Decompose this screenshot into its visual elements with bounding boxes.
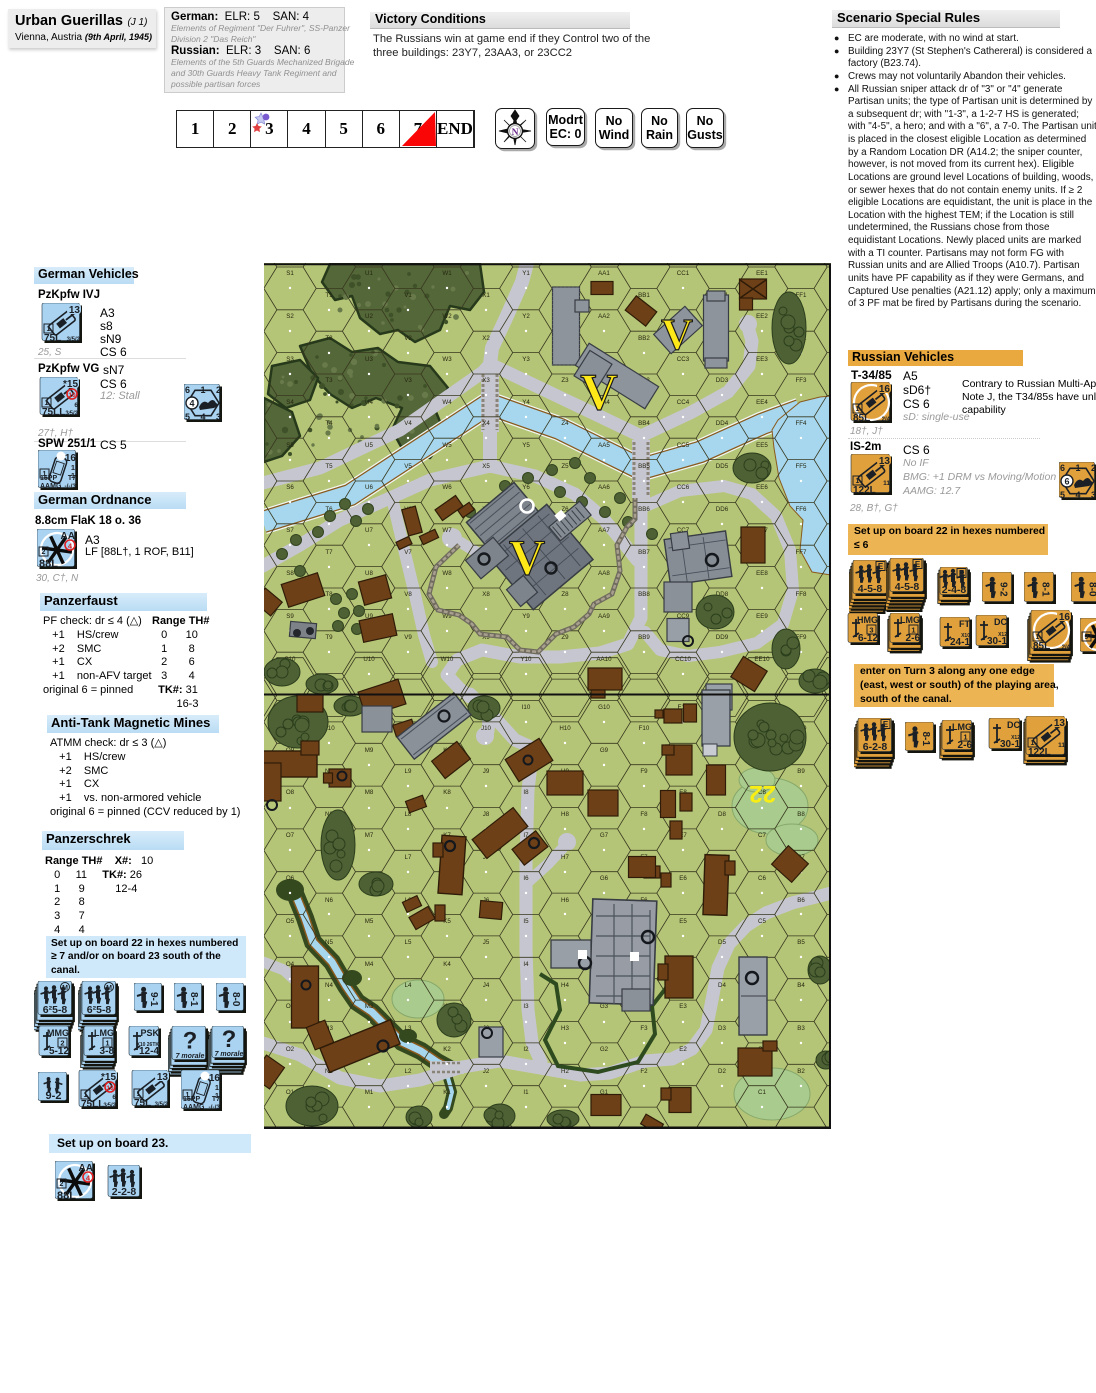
svg-text:DC: DC [994, 617, 1007, 627]
svg-text:-/-/3: -/-/3 [208, 1104, 220, 1111]
svg-text:EE3: EE3 [756, 356, 768, 363]
svg-text:4: 4 [189, 399, 194, 409]
svg-text:6²5-8: 6²5-8 [87, 1004, 112, 1016]
svg-text:3-8: 3-8 [100, 1046, 115, 1057]
svg-text:13: 13 [69, 305, 81, 316]
svg-text:DD9: DD9 [716, 634, 729, 641]
svg-text:8-0: 8-0 [1086, 582, 1096, 597]
svg-text:Y4: Y4 [522, 399, 530, 406]
svg-text:LMG: LMG [900, 615, 920, 625]
svg-text:N4: N4 [325, 982, 333, 989]
svg-text:75L: 75L [134, 1098, 151, 1109]
svg-text:U8: U8 [365, 570, 373, 577]
svg-text:EE5: EE5 [756, 442, 768, 449]
svg-text:I5: I5 [523, 918, 529, 925]
svg-text:1: 1 [45, 400, 49, 407]
svg-text:13: 13 [1054, 718, 1066, 729]
svg-text:PSK: PSK [140, 1028, 159, 1038]
svg-text:BB4: BB4 [638, 420, 650, 427]
svg-text:DC: DC [1007, 720, 1020, 730]
svg-text:O2: O2 [286, 1046, 295, 1053]
svg-text:M8: M8 [365, 789, 374, 796]
svg-text:6²5-8: 6²5-8 [43, 1004, 68, 1016]
svg-text:M: M [106, 985, 112, 992]
svg-text:4-5-8: 4-5-8 [895, 581, 920, 593]
svg-text:Z8: Z8 [561, 591, 569, 598]
svg-text:15PP: 15PP [40, 475, 57, 482]
svg-text:J9: J9 [483, 768, 490, 775]
svg-text:T7: T7 [325, 549, 333, 556]
svg-text:T7: T7 [212, 1096, 220, 1103]
svg-text:2: 2 [216, 385, 221, 395]
svg-text:V1: V1 [404, 292, 412, 299]
svg-text:BB2: BB2 [638, 335, 650, 342]
svg-text:BB6: BB6 [638, 506, 650, 513]
svg-text:O5: O5 [286, 918, 295, 925]
svg-text:F10: F10 [639, 725, 650, 732]
svg-text:AAMG: AAMG [40, 483, 62, 490]
svg-text:W8: W8 [442, 570, 452, 577]
svg-text:B8: B8 [797, 811, 805, 818]
svg-text:2/4: 2/4 [1062, 645, 1071, 651]
svg-text:B6: B6 [797, 897, 805, 904]
svg-text:EE1: EE1 [756, 270, 768, 277]
svg-text:10: 10 [106, 1085, 114, 1092]
svg-text:CC6: CC6 [677, 484, 690, 491]
svg-text:4: 4 [200, 412, 205, 422]
svg-text:1: 1 [47, 326, 51, 333]
svg-text:AA7: AA7 [598, 527, 610, 534]
svg-text:B9: B9 [797, 768, 805, 775]
svg-text:3/5/2: 3/5/2 [67, 337, 81, 343]
svg-text:DD3: DD3 [716, 377, 729, 384]
svg-text:S8: S8 [286, 570, 294, 577]
svg-text:V2: V2 [404, 335, 412, 342]
svg-text:V: V [661, 310, 693, 359]
svg-text:J10: J10 [481, 725, 492, 732]
svg-text:CC10: CC10 [675, 656, 691, 663]
svg-text:LMG: LMG [952, 722, 972, 732]
svg-text:1: 1 [1031, 740, 1035, 747]
svg-text:X5: X5 [482, 463, 490, 470]
svg-text:T9: T9 [325, 634, 333, 641]
svg-text:6: 6 [1060, 463, 1065, 473]
svg-text:9-2: 9-2 [46, 1090, 62, 1102]
svg-text:H3: H3 [561, 1025, 569, 1032]
svg-text:3∕5/2: 3∕5/2 [103, 1102, 116, 1109]
svg-text:I1: I1 [523, 1089, 529, 1096]
svg-text:CC1: CC1 [677, 270, 690, 277]
svg-text:EE6: EE6 [756, 484, 768, 491]
svg-text:16: 16 [879, 384, 891, 395]
svg-text:B3: B3 [797, 1025, 805, 1032]
svg-text:H7: H7 [561, 854, 569, 861]
svg-text:F3: F3 [640, 1025, 648, 1032]
svg-text:V: V [580, 364, 618, 421]
svg-text:13: 13 [879, 456, 891, 467]
svg-text:J2: J2 [483, 1068, 490, 1075]
svg-text:K8: K8 [443, 789, 451, 796]
svg-text:D8: D8 [718, 811, 726, 818]
svg-text:30-1: 30-1 [987, 636, 1007, 647]
svg-text:I4: I4 [523, 961, 529, 968]
svg-text:E6: E6 [679, 875, 687, 882]
svg-text:22: 22 [749, 780, 776, 807]
svg-text:1: 1 [200, 385, 205, 395]
svg-text:S5: S5 [286, 442, 294, 449]
svg-text:B5: B5 [797, 939, 805, 946]
svg-text:85L: 85L [853, 413, 870, 424]
svg-text:U7: U7 [365, 527, 373, 534]
svg-text:S2: S2 [286, 313, 294, 320]
svg-text:I6: I6 [523, 875, 529, 882]
svg-text:9: 9 [1085, 634, 1089, 641]
svg-text:X2: X2 [482, 335, 490, 342]
svg-text:M3: M3 [365, 1003, 374, 1010]
svg-text:AA10: AA10 [596, 656, 612, 663]
svg-text:S1: S1 [286, 270, 294, 277]
svg-text:LMG: LMG [94, 1028, 114, 1038]
svg-text:E: E [915, 560, 921, 569]
svg-text:6-2-8: 6-2-8 [863, 741, 888, 753]
svg-text:H10: H10 [559, 725, 571, 732]
svg-text:I3: I3 [523, 1003, 529, 1010]
svg-text:1: 1 [856, 478, 860, 485]
svg-text:E: E [883, 720, 889, 729]
svg-text:V3: V3 [404, 377, 412, 384]
svg-text:FF4: FF4 [795, 420, 807, 427]
svg-text:AAMG: AAMG [183, 1104, 205, 1111]
svg-text:D5: D5 [718, 939, 726, 946]
svg-text:X4: X4 [482, 420, 490, 427]
svg-text:8-1: 8-1 [920, 732, 931, 747]
svg-text:F2: F2 [640, 1068, 648, 1075]
svg-text:6: 6 [74, 402, 78, 409]
svg-text:CC4: CC4 [677, 399, 690, 406]
svg-text:FF8: FF8 [795, 591, 807, 598]
svg-text:5-12: 5-12 [49, 1046, 69, 1057]
svg-text:MMG: MMG [47, 1028, 69, 1038]
svg-text:L3: L3 [405, 1025, 412, 1032]
svg-text:5: 5 [185, 412, 190, 422]
svg-text:K1: K1 [443, 1089, 451, 1096]
svg-text:1: 1 [856, 406, 860, 413]
svg-text:V: V [509, 529, 545, 585]
svg-text:1: 1 [1075, 463, 1080, 473]
svg-text:Y9: Y9 [522, 613, 530, 620]
svg-text:D4: D4 [718, 982, 726, 989]
svg-text:J4: J4 [483, 982, 490, 989]
svg-text:I8: I8 [523, 789, 529, 796]
svg-text:B4: B4 [797, 982, 805, 989]
svg-text:N: N [512, 128, 519, 138]
svg-text:I2: I2 [523, 1046, 529, 1053]
svg-text:K4: K4 [443, 961, 451, 968]
svg-text:W10: W10 [441, 656, 454, 663]
svg-text:Z9: Z9 [561, 634, 569, 641]
svg-text:V7: V7 [404, 549, 412, 556]
svg-text:15PP: 15PP [183, 1096, 200, 1103]
svg-text:M9: M9 [365, 747, 374, 754]
svg-text:W5: W5 [442, 442, 452, 449]
svg-text:7 morale: 7 morale [215, 1051, 244, 1058]
svg-text:V8: V8 [404, 591, 412, 598]
svg-text:G9: G9 [600, 747, 609, 754]
svg-text:L7: L7 [405, 854, 412, 861]
svg-text:75LL: 75LL [81, 1099, 104, 1110]
svg-text:11: 11 [883, 480, 890, 487]
svg-text:U10: U10 [363, 656, 375, 663]
svg-text:C6: C6 [758, 875, 766, 882]
svg-text:O6: O6 [286, 875, 295, 882]
svg-text:W6: W6 [442, 484, 452, 491]
svg-text:M1: M1 [365, 1089, 374, 1096]
svg-text:M: M [62, 985, 68, 992]
svg-text:EE9: EE9 [756, 613, 768, 620]
svg-text:11: 11 [1058, 742, 1065, 749]
svg-text:W3: W3 [442, 356, 452, 363]
svg-text:I10: I10 [522, 704, 531, 711]
svg-text:D3: D3 [718, 1025, 726, 1032]
svg-text:BB9: BB9 [638, 634, 650, 641]
svg-text:3∕5/2: 3∕5/2 [65, 410, 78, 417]
svg-text:75L: 75L [44, 333, 61, 344]
svg-text:10: 10 [68, 392, 76, 399]
svg-text:T1: T1 [325, 292, 333, 299]
svg-text:85L: 85L [1033, 641, 1050, 652]
svg-text:4-5-8: 4-5-8 [858, 583, 883, 595]
svg-text:2-2-8: 2-2-8 [112, 1186, 137, 1198]
svg-text:M4: M4 [365, 961, 374, 968]
svg-text:2: 2 [42, 549, 46, 556]
svg-text:DD5: DD5 [716, 463, 729, 470]
svg-text:2/4: 2/4 [882, 417, 891, 423]
svg-text:W7: W7 [442, 527, 452, 534]
svg-text:Y10: Y10 [520, 656, 532, 663]
svg-text:Y1: Y1 [522, 270, 530, 277]
svg-text:W4: W4 [442, 399, 452, 406]
svg-text:2-6: 2-6 [906, 633, 921, 644]
svg-text:6: 6 [185, 385, 190, 395]
svg-text:W2: W2 [442, 313, 452, 320]
svg-text:O8: O8 [286, 789, 295, 796]
svg-text:W1: W1 [442, 270, 452, 277]
svg-text:8-0: 8-0 [230, 992, 241, 1007]
svg-text:6: 6 [112, 1094, 116, 1101]
svg-text:N5: N5 [325, 939, 333, 946]
svg-text:U2: U2 [365, 313, 373, 320]
svg-text:X1: X1 [482, 292, 490, 299]
svg-text:T5: T5 [325, 463, 333, 470]
svg-text:U4: U4 [365, 399, 373, 406]
svg-text:E: E [959, 569, 965, 578]
svg-text:G10: G10 [598, 704, 610, 711]
svg-text:S4: S4 [286, 399, 294, 406]
svg-text:S7: S7 [286, 527, 294, 534]
svg-text:U1: U1 [365, 270, 373, 277]
svg-text:3: 3 [216, 412, 221, 422]
svg-text:4: 4 [1075, 490, 1080, 500]
svg-text:X8: X8 [482, 591, 490, 598]
svg-text:2: 2 [1091, 463, 1096, 473]
svg-text:122L: 122L [853, 485, 876, 496]
svg-text:D2: D2 [718, 1068, 726, 1075]
svg-text:J5: J5 [483, 939, 490, 946]
svg-text:Z4: Z4 [561, 420, 569, 427]
svg-text:BB8: BB8 [638, 591, 650, 598]
svg-text:L4: L4 [405, 982, 412, 989]
svg-text:V9: V9 [404, 634, 412, 641]
svg-text:HMG: HMG [857, 615, 878, 625]
svg-text:AA2: AA2 [598, 313, 610, 320]
svg-text:122L: 122L [1028, 747, 1051, 758]
svg-text:24-1: 24-1 [950, 637, 970, 648]
svg-text:X3: X3 [482, 377, 490, 384]
svg-text:T4: T4 [325, 420, 333, 427]
svg-text:G2: G2 [600, 1046, 609, 1053]
svg-text:J8: J8 [483, 811, 490, 818]
svg-text:BB5: BB5 [638, 463, 650, 470]
svg-text:2-6: 2-6 [958, 740, 973, 751]
svg-text:V4: V4 [404, 420, 412, 427]
svg-text:L2: L2 [405, 1068, 412, 1075]
svg-text:3: 3 [1091, 490, 1096, 500]
svg-text:FF3: FF3 [795, 377, 807, 384]
svg-text:H4: H4 [561, 982, 569, 989]
svg-text:EE10: EE10 [754, 656, 770, 663]
svg-text:6: 6 [1064, 477, 1069, 487]
svg-text:L5: L5 [405, 939, 412, 946]
svg-text:88L: 88L [57, 1190, 76, 1202]
svg-text:16: 16 [1059, 612, 1071, 623]
svg-text:2: 2 [60, 1181, 64, 1188]
svg-text:12-4: 12-4 [139, 1046, 159, 1057]
svg-text:U5: U5 [365, 442, 373, 449]
svg-text:FF7: FF7 [795, 549, 807, 556]
svg-text:H6: H6 [561, 897, 569, 904]
svg-text:O7: O7 [286, 832, 295, 839]
svg-text:C1: C1 [758, 1089, 766, 1096]
svg-text:G6: G6 [600, 875, 609, 882]
svg-text:U3: U3 [365, 356, 373, 363]
svg-text:9-1: 9-1 [148, 992, 159, 1007]
svg-text:M7: M7 [365, 832, 374, 839]
svg-text:AA1: AA1 [598, 270, 610, 277]
svg-text:-/-/3: -/-/3 [64, 483, 76, 490]
svg-text:FT: FT [959, 619, 970, 629]
svg-text:C7: C7 [758, 832, 766, 839]
svg-text:EE4: EE4 [756, 399, 768, 406]
svg-text:Z3: Z3 [561, 377, 569, 384]
svg-text:30-1: 30-1 [1000, 739, 1020, 750]
svg-text:S6: S6 [286, 484, 294, 491]
svg-text:1: 1 [1036, 634, 1040, 641]
svg-text:BB1: BB1 [638, 292, 650, 299]
svg-text:T2: T2 [325, 335, 333, 342]
svg-text:M5: M5 [365, 918, 374, 925]
svg-text:Y5: Y5 [522, 442, 530, 449]
svg-text:3/5/2: 3/5/2 [155, 1102, 169, 1108]
svg-text:F8: F8 [640, 811, 648, 818]
svg-text:8-1: 8-1 [1039, 582, 1050, 597]
svg-text:7 morale: 7 morale [176, 1053, 205, 1060]
svg-text:AA5: AA5 [598, 442, 610, 449]
svg-text:E2: E2 [679, 1046, 687, 1053]
svg-text:Y3: Y3 [522, 356, 530, 363]
svg-text:Y6: Y6 [522, 484, 530, 491]
svg-text:T3: T3 [325, 377, 333, 384]
svg-text:2-4-8: 2-4-8 [942, 584, 967, 596]
svg-text:DD4: DD4 [716, 420, 729, 427]
svg-text:88L: 88L [39, 558, 58, 570]
svg-text:S9: S9 [286, 613, 294, 620]
svg-text:V5: V5 [404, 463, 412, 470]
svg-text:E3: E3 [679, 1003, 687, 1010]
svg-text:EE8: EE8 [756, 570, 768, 577]
svg-text:?: ? [183, 1027, 198, 1054]
svg-text:T7: T7 [68, 475, 76, 482]
svg-text:1: 1 [84, 1092, 88, 1099]
svg-text:Z5: Z5 [561, 463, 569, 470]
svg-text:5: 5 [1060, 490, 1065, 500]
svg-text:AA6: AA6 [598, 484, 610, 491]
svg-text:8-1: 8-1 [188, 992, 199, 1007]
svg-text:?: ? [222, 1026, 237, 1053]
svg-text:DD6: DD6 [716, 506, 729, 513]
svg-text:6-12: 6-12 [858, 633, 878, 644]
svg-text:U6: U6 [365, 484, 373, 491]
svg-text:9-2: 9-2 [997, 582, 1008, 597]
svg-text:N6: N6 [325, 897, 333, 904]
svg-text:Y2: Y2 [522, 313, 530, 320]
svg-text:AA9: AA9 [598, 613, 610, 620]
svg-text:G7: G7 [600, 832, 609, 839]
svg-text:75LL: 75LL [42, 407, 65, 418]
svg-text:E5: E5 [679, 918, 687, 925]
svg-text:H8: H8 [561, 811, 569, 818]
svg-text:1: 1 [137, 1091, 141, 1098]
svg-text:L9: L9 [405, 768, 412, 775]
svg-text:FF5: FF5 [795, 463, 807, 470]
svg-text:13: 13 [157, 1072, 169, 1083]
svg-text:C5: C5 [758, 918, 766, 925]
svg-text:E: E [878, 562, 884, 571]
svg-text:K2: K2 [443, 1046, 451, 1053]
svg-text:B2: B2 [797, 1068, 805, 1075]
svg-text:S3: S3 [286, 356, 294, 363]
svg-text:F9: F9 [640, 768, 648, 775]
svg-text:BB7: BB7 [638, 549, 650, 556]
svg-text:FF6: FF6 [795, 506, 807, 513]
svg-text:AA8: AA8 [598, 570, 610, 577]
svg-text:CC5: CC5 [677, 442, 690, 449]
svg-text:EE2: EE2 [756, 313, 768, 320]
